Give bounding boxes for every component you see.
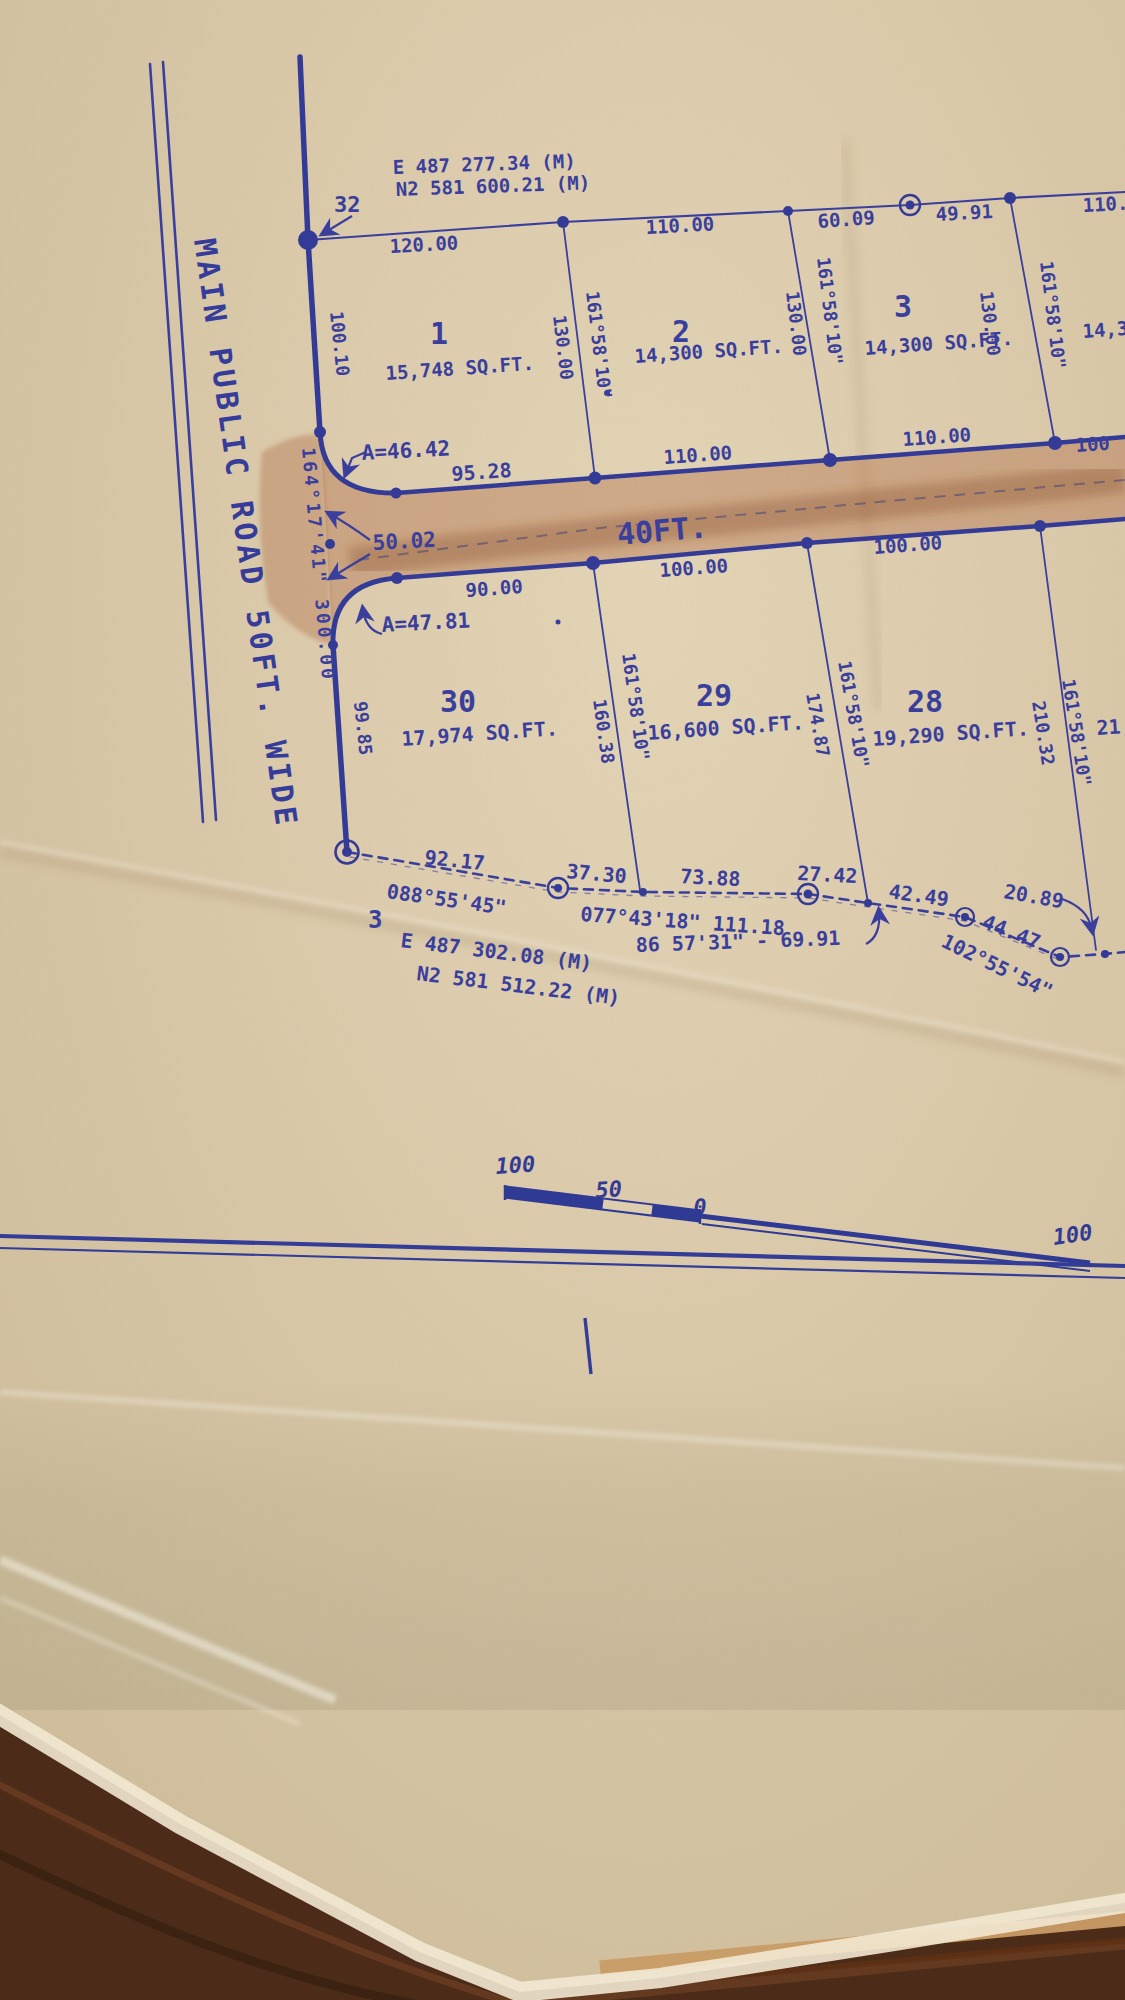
lot4-area-partial: 14,3 <box>1082 317 1125 342</box>
corner3-label: 3 <box>368 906 382 934</box>
survey-point <box>783 206 793 216</box>
lot3-front-a: 60.09 <box>817 206 876 232</box>
arc-b-label: A=47.81 <box>381 608 471 637</box>
lot28-number: 28 <box>907 684 943 719</box>
chain-73-88: 73.88 <box>680 864 741 891</box>
lot30-number: 30 <box>440 684 476 719</box>
lot29-number: 29 <box>696 678 732 713</box>
survey-point <box>823 453 837 467</box>
survey-point <box>1034 520 1046 532</box>
survey-point <box>801 537 813 549</box>
plat-canvas: E 487 277.34 (M) N2 581 600.21 (M) 32 12… <box>0 0 1125 2000</box>
lot30-front: 90.00 <box>465 575 524 601</box>
survey-point <box>314 426 326 438</box>
scale-100-left: 100 <box>495 1151 536 1179</box>
survey-point <box>391 488 402 499</box>
chain-27-42: 27.42 <box>797 861 858 888</box>
lot2-front: 110.00 <box>645 212 715 238</box>
corner32-label: 32 <box>334 192 361 217</box>
ink-speck <box>556 620 561 625</box>
survey-point <box>557 216 569 228</box>
survey-point <box>864 899 872 907</box>
scale-bar-open-cell <box>603 1204 652 1210</box>
survey-point <box>1101 950 1109 958</box>
lot27-area-partial: 21, <box>1096 714 1125 740</box>
survey-point <box>1004 192 1016 204</box>
survey-point <box>586 556 600 570</box>
throat-width: 50.02 <box>372 528 436 555</box>
lot4-front-partial: 110. <box>1082 192 1125 216</box>
lot4-rear-partial: 100 <box>1075 432 1111 456</box>
corner-point-32 <box>298 230 318 250</box>
survey-point <box>391 572 403 584</box>
survey-point <box>1048 436 1062 450</box>
lot1-front: 120.00 <box>389 231 459 257</box>
lot1-number: 1 <box>430 316 448 351</box>
photo-of-survey-plat: E 487 277.34 (M) N2 581 600.21 (M) 32 12… <box>0 0 1125 2000</box>
lot3-front-b: 49.91 <box>935 200 993 225</box>
arc-a-label: A=46.42 <box>361 436 451 465</box>
survey-point <box>639 888 647 896</box>
lot3-number: 3 <box>894 289 912 324</box>
lot1-rear: 95.28 <box>451 458 513 486</box>
survey-point <box>589 472 602 485</box>
